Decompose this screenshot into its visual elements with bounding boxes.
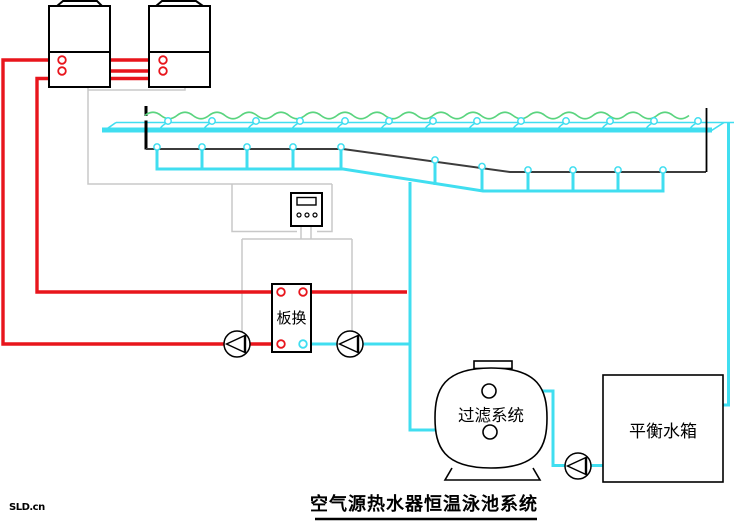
- primary-circulation-pump: [224, 331, 250, 357]
- filter-label: 过滤系统: [458, 406, 524, 425]
- heat-exchanger-label: 板换: [276, 309, 306, 327]
- diagram-title: 空气源热水器恒温泳池系统: [310, 493, 538, 515]
- pool-circulation-pump: [337, 331, 363, 357]
- heat-pump-unit-2: [149, 1, 210, 87]
- filter-tank: 过滤系统: [435, 361, 547, 480]
- control-wire-left-bracket: [232, 184, 297, 232]
- hot-water-piping: [3, 60, 407, 344]
- filter-tank-base: [445, 468, 540, 480]
- temperature-controller: [291, 193, 322, 226]
- heat-pump-unit-1: [49, 1, 110, 87]
- balance-tank: 平衡水箱: [603, 375, 723, 482]
- filter-port-in: [483, 425, 497, 439]
- controller-buttons: [297, 213, 317, 217]
- pipe-tank-riser: [723, 123, 729, 406]
- filter-port-out: [482, 384, 496, 398]
- filter-feed-pump: [565, 453, 591, 479]
- pipe-heatpump-supply: [3, 60, 280, 344]
- watermark: SLD.cn: [9, 502, 45, 513]
- heat-exchanger: 板换: [272, 284, 311, 352]
- controller-display: [297, 198, 316, 206]
- inlet-jet-manifold: [102, 123, 734, 132]
- diagram-canvas: 板换 过滤系统 平衡水箱 空气源热水器恒温泳池系统 SLD.cn: [0, 0, 740, 522]
- water-surface-wave: [145, 112, 689, 119]
- pool-structure: [146, 106, 707, 172]
- balance-tank-label: 平衡水箱: [629, 422, 697, 442]
- schematic-diagram: 板换 过滤系统 平衡水箱 空气源热水器恒温泳池系统 SLD.cn: [0, 0, 740, 522]
